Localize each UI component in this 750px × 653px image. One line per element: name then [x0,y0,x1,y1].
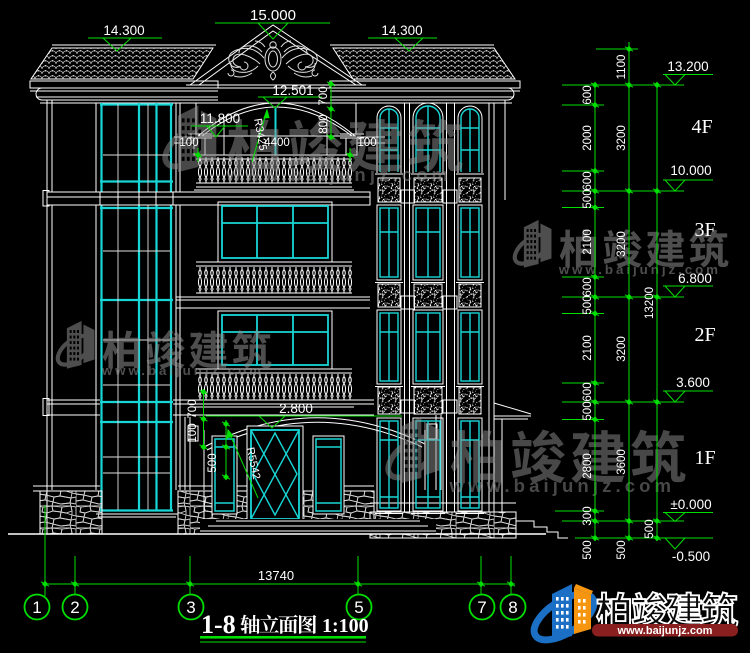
svg-text:13.200: 13.200 [667,59,708,74]
svg-text:1: 1 [32,598,41,617]
svg-text:www.baijunjz.com: www.baijunjz.com [226,164,453,185]
svg-text:3: 3 [186,598,195,617]
svg-text:500: 500 [582,189,594,208]
svg-text:1:100: 1:100 [322,615,369,637]
svg-text:600: 600 [582,85,594,104]
svg-text:100: 100 [357,137,376,149]
svg-text:600: 600 [582,277,594,296]
svg-text:14.300: 14.300 [381,23,422,38]
svg-text:3200: 3200 [616,336,628,362]
svg-text:6.800: 6.800 [678,271,712,286]
svg-text:500: 500 [582,295,594,314]
svg-text:13740: 13740 [258,568,294,583]
svg-text:2: 2 [70,598,79,617]
svg-text:-0.500: -0.500 [672,549,710,564]
svg-text:500: 500 [644,519,656,538]
svg-text:8: 8 [508,598,517,617]
svg-text:3F: 3F [694,219,715,241]
svg-text:1F: 1F [694,447,715,469]
svg-text:3200: 3200 [616,231,628,257]
svg-text:11.800: 11.800 [200,111,240,126]
svg-text:2F: 2F [694,324,715,346]
svg-text:600: 600 [582,382,594,401]
svg-text:15.000: 15.000 [250,7,296,24]
svg-text:2000: 2000 [582,125,594,151]
svg-text:www.baijunjz.com: www.baijunjz.com [617,625,713,637]
svg-text:2800: 2800 [582,453,594,479]
svg-text:4F: 4F [691,116,712,138]
svg-text:10.000: 10.000 [670,163,711,178]
svg-text:500: 500 [582,540,594,559]
svg-text:500: 500 [207,453,219,472]
svg-text:100: 100 [187,423,199,442]
svg-text:2100: 2100 [582,229,594,255]
svg-text:www.baijunjz.com: www.baijunjz.com [449,475,676,496]
svg-text:300: 300 [582,506,594,525]
svg-text:700: 700 [187,399,199,418]
svg-text:www.baijunjz.com: www.baijunjz.com [101,363,264,378]
svg-text:500: 500 [582,401,594,420]
svg-text:±0.000: ±0.000 [670,497,711,512]
svg-text:13200: 13200 [644,287,656,319]
svg-text:2.800: 2.800 [279,401,313,416]
svg-text:1100: 1100 [616,55,628,80]
svg-text:12.501: 12.501 [272,83,313,98]
svg-text:3200: 3200 [616,125,628,151]
svg-text:3600: 3600 [616,449,628,475]
svg-text:14.300: 14.300 [103,23,144,38]
svg-text:1-8: 1-8 [201,610,236,639]
svg-text:800: 800 [318,114,330,133]
svg-text:7: 7 [477,598,486,617]
svg-text:700: 700 [318,86,330,105]
svg-text:100: 100 [179,137,198,149]
svg-text:600: 600 [582,171,594,190]
svg-text:500: 500 [616,540,628,559]
svg-text:2100: 2100 [582,335,594,361]
svg-text:3.600: 3.600 [676,375,710,390]
